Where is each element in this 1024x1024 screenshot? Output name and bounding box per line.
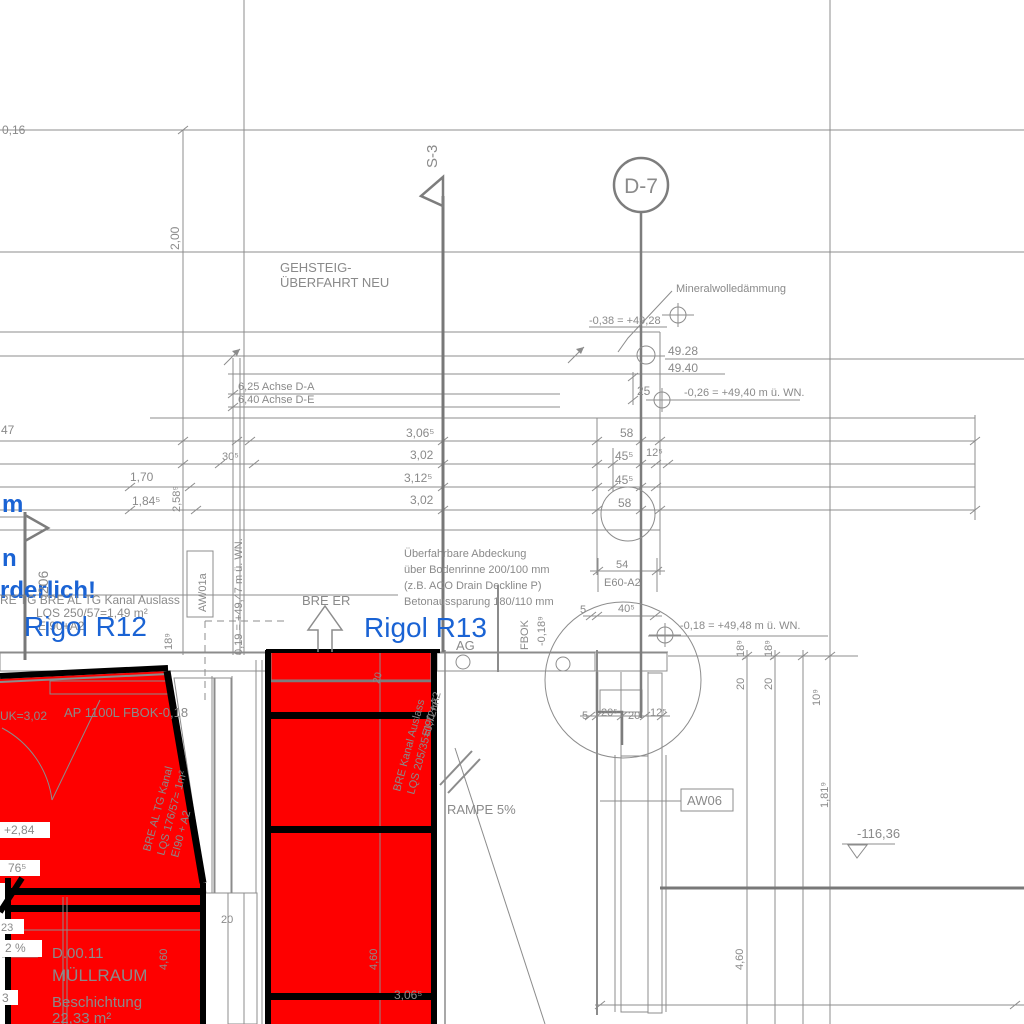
dim-5-a: 5 — [580, 604, 586, 616]
tick-marks — [125, 126, 1020, 1009]
dim-18-r2: ,18⁹ — [763, 640, 775, 660]
cad-plan-canvas: 0,16 2,00 S-3 D-7 GEHSTEIG- ÜBERFAHRT NE… — [0, 0, 1024, 1024]
axis-d-a: 6,25 Achse D-A — [238, 381, 315, 393]
dim-25: 25 — [637, 384, 651, 398]
gehsteig-note-line1: GEHSTEIG- — [280, 260, 352, 275]
bre-er-arrow-icon — [308, 606, 342, 652]
room-area: 22,33 m² — [52, 1010, 111, 1024]
dim-20-5: 20⁵ — [601, 707, 618, 719]
dim-4-60-column: 4,60 — [368, 949, 380, 970]
dim-5-b: 5 — [582, 710, 588, 722]
dim-3-02-a: 3,02 — [410, 448, 434, 462]
right-exterior-wall — [597, 650, 666, 1015]
dim-45-b: 45⁵ — [615, 473, 633, 487]
dim-4-60-right: 4,60 — [734, 949, 746, 970]
survey-point-icon — [662, 303, 694, 327]
blue-note-fragment-m: m — [2, 491, 23, 518]
construction-drawing: 0,16 2,00 S-3 D-7 GEHSTEIG- ÜBERFAHRT NE… — [0, 0, 1024, 1024]
dim-1-81: 1,81⁹ — [819, 782, 831, 808]
room-coating: Beschichtung — [52, 994, 142, 1011]
dim-0-16: 0,16 — [2, 123, 26, 137]
level-point-circle — [637, 346, 655, 364]
dim-2-percent: 2 % — [5, 941, 26, 955]
dim-12-b: 12⁵ — [650, 707, 667, 719]
tag-aw06: AW06 — [687, 793, 722, 808]
level-49-47-rot: 0,19 = +49,47 m ü. WN. — [233, 538, 245, 655]
fbok-level: -0,18⁹ — [536, 616, 548, 646]
uk-label: UK=3,02 — [0, 709, 47, 723]
dim-20-r1: 20 — [735, 678, 747, 690]
dim-1-70: 1,70 — [130, 470, 154, 484]
rampe-label: RAMPE 5% — [447, 802, 516, 817]
dim-18-rot: 18⁹ — [163, 633, 175, 650]
section-flag-triangle — [421, 177, 443, 206]
red-column-rigol-r13 — [271, 652, 431, 1024]
cover-note-line3: (z.B. ACO Drain Deckline P) — [404, 580, 542, 592]
dim-3: 3 — [2, 991, 9, 1005]
tag-e60-a2: E60-A2 — [604, 577, 641, 589]
level-49-40-eq: -0,26 = +49,40 m ü. WN. — [684, 387, 804, 399]
rigol-r12-label: Rigol R12 — [24, 611, 147, 642]
level-49-28: 49.28 — [668, 344, 698, 358]
level-116-36: -116,36 — [857, 826, 900, 841]
dim-10: 10⁹ — [811, 689, 823, 706]
dim-3-06-b: 3,06⁵ — [394, 988, 422, 1002]
room-number: D.00.11 — [52, 945, 103, 962]
matchline-arrow — [224, 349, 240, 365]
dim-58-b: 58 — [618, 496, 632, 510]
ramp-lines — [440, 748, 545, 1024]
mineralwool-label: Mineralwolledämmung — [676, 283, 786, 295]
matchline-arrow — [568, 347, 584, 363]
dim-58-a: 58 — [620, 426, 634, 440]
dim-54: 54 — [616, 559, 628, 571]
bre-er-label: BRE ER — [302, 593, 350, 608]
dim-23: 23 — [1, 922, 13, 934]
dim-3-06-a: 3,06⁵ — [406, 426, 434, 440]
pipe-section-circle — [456, 655, 470, 669]
level-symbol-116 — [848, 845, 867, 858]
dim-3-12: 3,12⁵ — [404, 471, 432, 485]
dim-76: 76⁵ — [8, 861, 26, 875]
cover-note-line1: Überfahrbare Abdeckung — [404, 548, 526, 560]
axis-d-e: 6,40 Achse D-E — [238, 394, 314, 406]
survey-point-icon — [646, 388, 678, 412]
level-49-28-eq: -0,38 = +49,28 — [589, 315, 661, 327]
ag-label: AG — [456, 638, 475, 653]
survey-point-icon — [649, 623, 681, 647]
dim-40: 40⁵ — [618, 603, 635, 615]
cover-note-line4: Betonaussparung 180/110 mm — [404, 596, 554, 608]
dim-20-r2: 20 — [763, 678, 775, 690]
dim-3-02-b: 3,02 — [410, 493, 434, 507]
kanal-r12-line1: RE TG BRE AL TG Kanal Auslass — [0, 593, 180, 607]
level-49-40: 49.40 — [668, 361, 698, 375]
dim-1-84: 1,84⁵ — [132, 494, 160, 508]
dim-45-a: 45⁵ — [615, 449, 633, 463]
room-name: MÜLLRAUM — [52, 966, 147, 985]
dim-47: 47 — [1, 423, 15, 437]
dim-4-60-room: 4,60 — [158, 949, 170, 970]
blue-note-fragment-n: n — [2, 545, 17, 572]
level-49-48-eq: -0,18 = +49,48 m ü. WN. — [680, 620, 800, 632]
pipe-section-circle — [556, 657, 570, 671]
dim-2-58: 2,58⁹ — [171, 486, 183, 512]
dim-20-c: 20 — [221, 914, 233, 926]
dim-12-a: 12⁵ — [646, 447, 663, 459]
fbok-label: FBOK — [519, 619, 531, 650]
dim-20-b: 20 — [628, 710, 640, 722]
cover-note-line2: über Bodenrinne 200/100 mm — [404, 564, 550, 576]
dim-18-r1: ,18⁹ — [735, 640, 747, 660]
section-label-s3: S-3 — [424, 145, 441, 168]
tag-aw01a: AW/01a — [197, 572, 209, 612]
level-plus-2-84: +2,84 — [4, 823, 35, 837]
detail-label-d7: D-7 — [624, 175, 658, 198]
gehsteig-note-line2: ÜBERFAHRT NEU — [280, 275, 389, 290]
ap-1100l-label: AP 1100L FBOK-0,18 — [64, 705, 188, 720]
dim-30: 30⁵ — [222, 451, 239, 463]
insulation-batt-hatch — [597, 653, 667, 671]
dim-2-00: 2,00 — [168, 226, 182, 250]
